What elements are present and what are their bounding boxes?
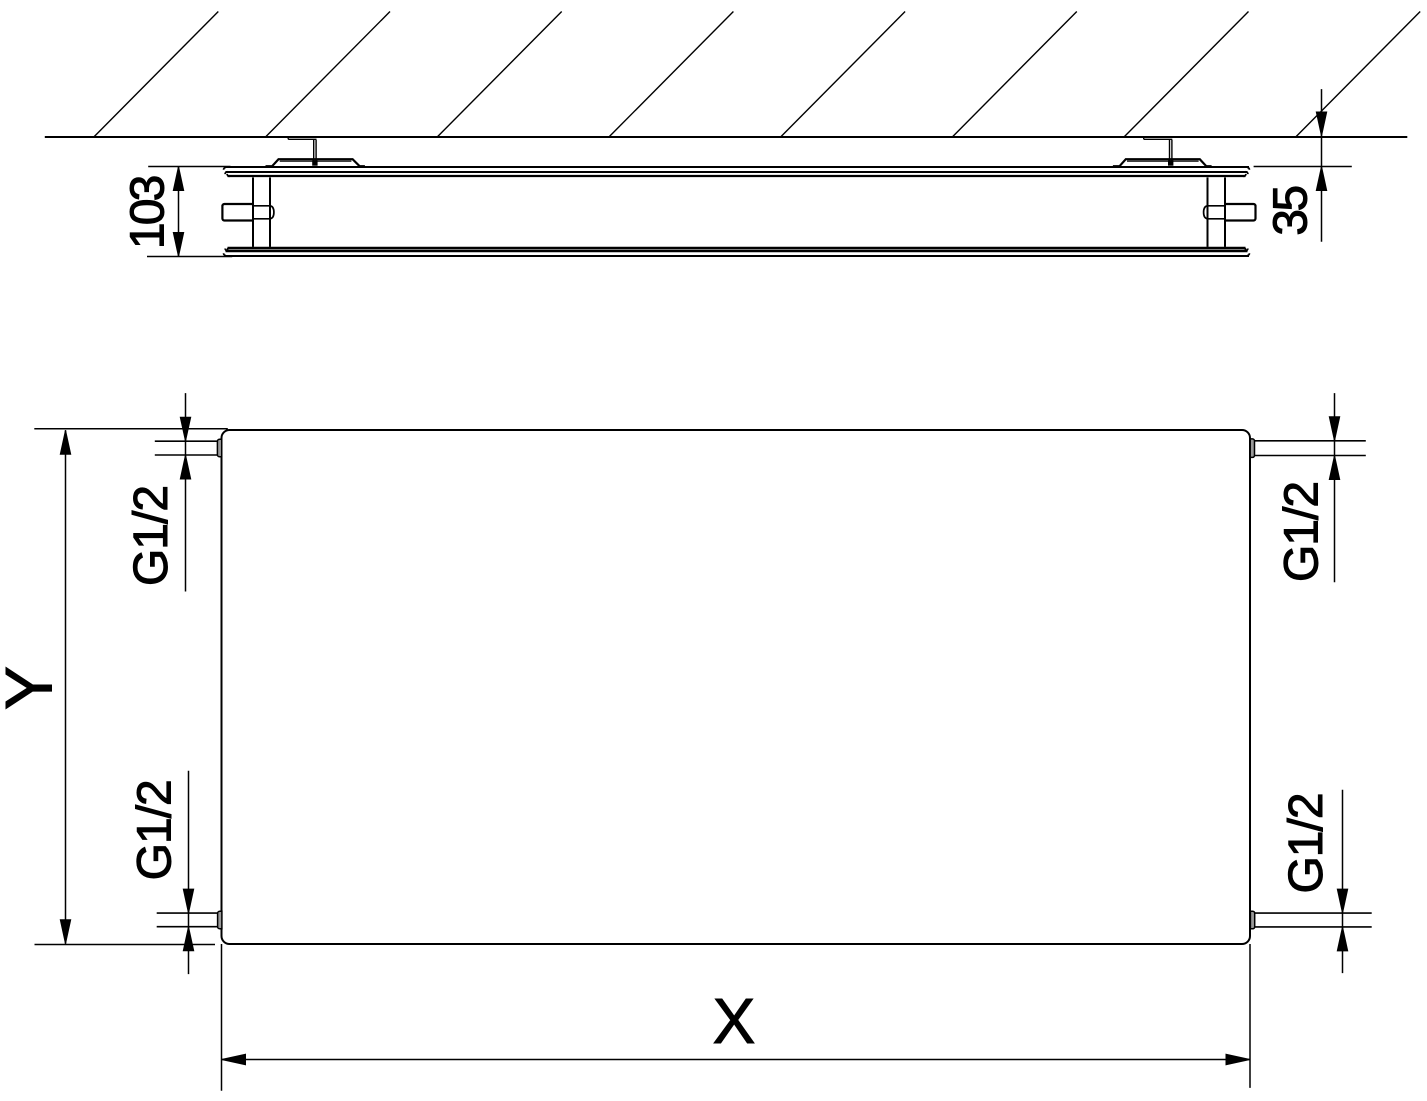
svg-text:X: X (713, 985, 756, 1057)
svg-text:Y: Y (0, 666, 66, 710)
svg-text:G1/2: G1/2 (125, 486, 178, 586)
svg-text:G1/2: G1/2 (129, 780, 182, 880)
svg-text:35: 35 (1265, 187, 1318, 236)
svg-text:G1/2: G1/2 (1280, 793, 1333, 893)
svg-text:G1/2: G1/2 (1275, 482, 1328, 582)
svg-text:103: 103 (122, 176, 175, 249)
